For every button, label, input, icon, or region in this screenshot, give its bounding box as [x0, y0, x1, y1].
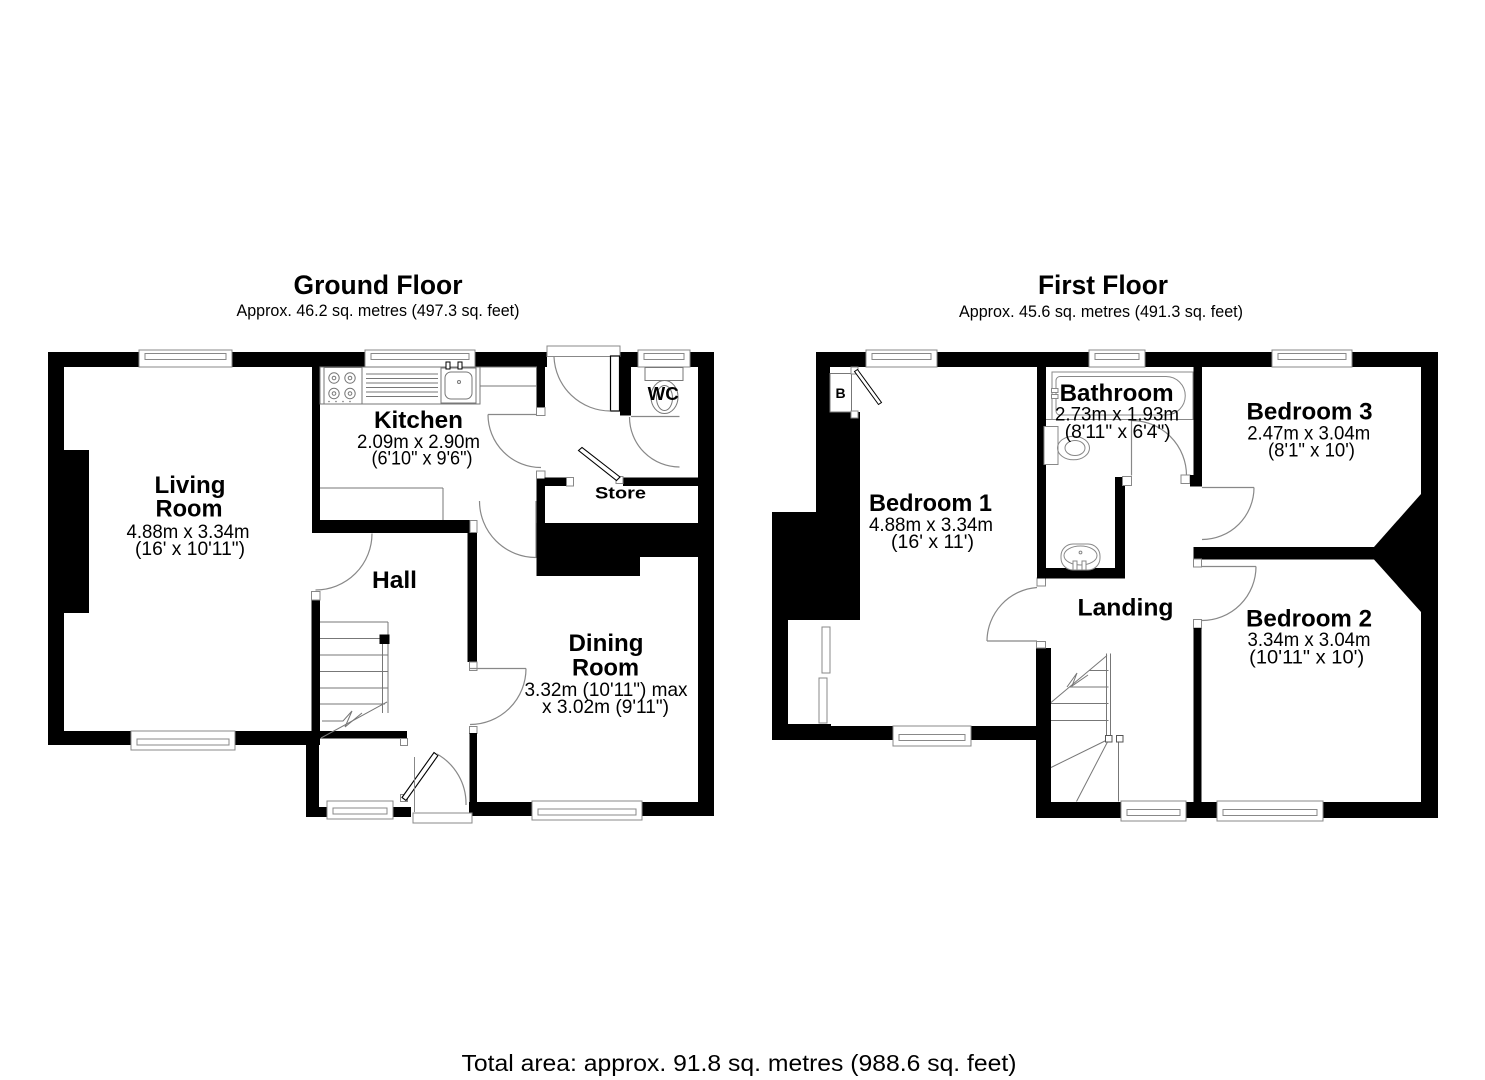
svg-text:Room: Room: [572, 655, 639, 682]
svg-text:(10'11" x 10'): (10'11" x 10'): [1249, 647, 1364, 669]
svg-text:Total area: approx. 91.8 sq. m: Total area: approx. 91.8 sq. metres (988…: [462, 1050, 1017, 1076]
svg-text:Dining: Dining: [569, 630, 644, 657]
svg-text:Approx. 46.2 sq. metres (497.3: Approx. 46.2 sq. metres (497.3 sq. feet): [237, 302, 520, 320]
svg-text:Kitchen: Kitchen: [374, 407, 463, 434]
svg-text:x 3.02m (9'11"): x 3.02m (9'11"): [542, 696, 669, 718]
svg-text:(8'11" x 6'4"): (8'11" x 6'4"): [1065, 421, 1171, 443]
svg-text:Bedroom 3: Bedroom 3: [1247, 399, 1373, 426]
svg-text:B: B: [835, 385, 845, 401]
svg-text:(8'1" x 10'): (8'1" x 10'): [1268, 440, 1355, 462]
svg-text:Bedroom 1: Bedroom 1: [869, 490, 992, 517]
svg-text:(6'10" x 9'6"): (6'10" x 9'6"): [372, 448, 473, 470]
svg-text:Ground Floor: Ground Floor: [294, 270, 463, 300]
svg-text:(16' x 11'): (16' x 11'): [891, 531, 974, 553]
svg-text:Hall: Hall: [372, 567, 417, 594]
svg-text:First Floor: First Floor: [1038, 270, 1168, 300]
svg-text:Approx. 45.6 sq. metres (491.3: Approx. 45.6 sq. metres (491.3 sq. feet): [959, 303, 1243, 321]
svg-text:Landing: Landing: [1078, 595, 1174, 622]
svg-text:Store: Store: [595, 484, 646, 503]
svg-text:Room: Room: [156, 496, 223, 523]
svg-text:(16' x 10'11"): (16' x 10'11"): [135, 538, 245, 560]
svg-text:WC: WC: [648, 384, 679, 404]
